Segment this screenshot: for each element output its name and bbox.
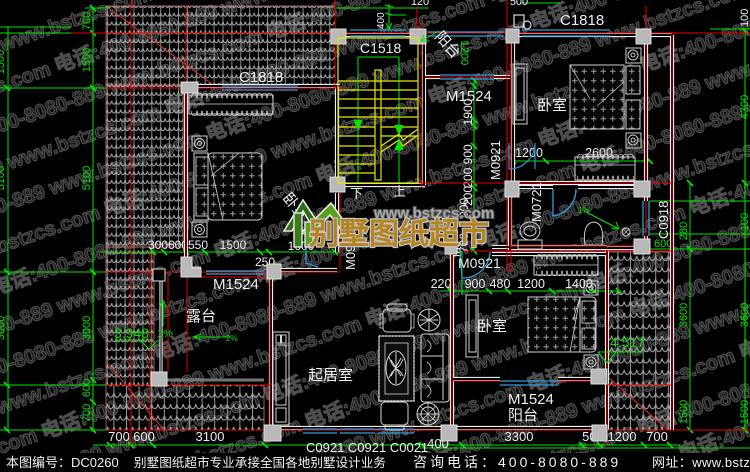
svg-text:600: 600 <box>81 379 93 397</box>
svg-text:M0921: M0921 <box>488 140 503 180</box>
svg-text:C0918: C0918 <box>656 201 671 239</box>
svg-text:3000: 3000 <box>0 316 7 340</box>
svg-text:700: 700 <box>81 404 93 422</box>
svg-text:5100: 5100 <box>81 166 93 190</box>
svg-text:C0921 C0921 C0021: C0921 C0921 C0021 <box>306 440 428 455</box>
svg-text:下: 下 <box>350 186 363 201</box>
svg-text:3300: 3300 <box>505 429 534 444</box>
svg-text:1500: 1500 <box>81 48 93 72</box>
svg-text:M0721: M0721 <box>529 182 544 222</box>
svg-text:起居室: 起居室 <box>308 367 353 384</box>
svg-text:1%: 1% <box>578 206 590 215</box>
svg-text:露台: 露台 <box>186 308 216 325</box>
svg-text:3600: 3600 <box>678 303 690 327</box>
svg-text:1%: 1% <box>157 328 173 340</box>
svg-text:卧室: 卧室 <box>537 97 567 114</box>
svg-text:1200: 1200 <box>515 146 543 160</box>
svg-text:M1524: M1524 <box>213 276 259 293</box>
svg-text:120: 120 <box>411 0 429 8</box>
svg-text:网址：www.bstzcs.com: 网址：www.bstzcs.com <box>652 455 750 470</box>
svg-text:220: 220 <box>431 277 452 291</box>
svg-text:100: 100 <box>739 213 750 231</box>
svg-text:C1518: C1518 <box>360 40 401 56</box>
svg-text:M0921: M0921 <box>458 255 501 271</box>
svg-text:1200: 1200 <box>608 429 637 444</box>
svg-text:1500: 1500 <box>678 400 690 424</box>
svg-text:3600: 3600 <box>739 303 750 327</box>
svg-text:300600: 300600 <box>148 238 188 252</box>
svg-text:M1524: M1524 <box>508 391 554 408</box>
svg-text:卧室: 卧室 <box>477 318 507 335</box>
svg-text:4.517: 4.517 <box>610 334 645 350</box>
svg-text:700: 700 <box>81 12 93 30</box>
svg-text:700: 700 <box>646 429 668 444</box>
svg-text:900: 900 <box>465 277 486 291</box>
svg-text:4300: 4300 <box>739 95 750 119</box>
svg-text:上: 上 <box>393 184 406 199</box>
svg-text:200 900: 200 900 <box>461 144 475 188</box>
svg-text:500: 500 <box>510 0 528 8</box>
svg-text:1500: 1500 <box>0 50 7 74</box>
svg-text:2%: 2% <box>226 334 238 343</box>
svg-text:480: 480 <box>490 277 511 291</box>
svg-text:别墅图纸超市专业承接全国各地别墅设计业务: 别墅图纸超市专业承接全国各地别墅设计业务 <box>134 455 386 470</box>
svg-text:1500: 1500 <box>220 238 247 252</box>
svg-text:280: 280 <box>678 222 690 240</box>
svg-text:咨询电话：400-8080-889: 咨询电话：400-8080-889 <box>413 454 621 470</box>
svg-text:400: 400 <box>376 12 387 29</box>
svg-text:600: 600 <box>133 429 155 444</box>
svg-text:别墅图纸超市: 别墅图纸超市 <box>309 217 489 251</box>
svg-text:M1524: M1524 <box>446 88 492 105</box>
svg-text:3100: 3100 <box>196 429 225 444</box>
svg-text:3.948: 3.948 <box>114 325 149 341</box>
svg-text:3000: 3000 <box>81 316 93 340</box>
svg-text:100: 100 <box>739 9 750 27</box>
svg-text:5100: 5100 <box>0 166 7 190</box>
svg-text:1500: 1500 <box>739 400 750 424</box>
svg-text:550: 550 <box>188 238 208 252</box>
svg-text:本图编号：DC0260: 本图编号：DC0260 <box>6 455 119 470</box>
svg-text:700: 700 <box>108 429 130 444</box>
svg-text:C1818: C1818 <box>239 69 283 86</box>
svg-text:C1818: C1818 <box>560 12 604 29</box>
svg-text:阳台: 阳台 <box>508 407 538 424</box>
svg-text:1200: 1200 <box>517 277 545 291</box>
